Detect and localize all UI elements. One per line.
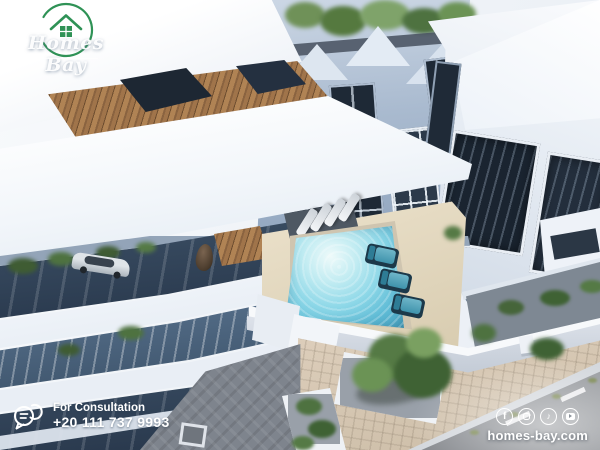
website-overlay: f ♪ homes-bay.com: [487, 408, 588, 443]
social-icons: f ♪: [487, 408, 588, 425]
facebook-glyph: f: [503, 412, 506, 422]
terrace-plant: [8, 258, 38, 274]
instagram-ring: [523, 413, 530, 420]
website-url: homes-bay.com: [487, 428, 588, 443]
terrace-plant: [136, 242, 156, 253]
tree-canopy: [406, 328, 442, 358]
consultation-text: For Consultation +20 111 737 9993: [53, 402, 170, 430]
brand-name: Homes Bay: [6, 32, 126, 76]
utility-box: [179, 422, 208, 447]
shrub: [308, 420, 336, 438]
consultation-phone: +20 111 737 9993: [53, 414, 170, 430]
chair-cushion: [387, 272, 409, 290]
tiktok-glyph: ♪: [546, 412, 551, 421]
balcony-plant: [58, 344, 80, 356]
deck-plant: [444, 226, 462, 240]
logo-underline: [34, 58, 98, 59]
youtube-play: [566, 413, 575, 420]
shrub: [540, 290, 570, 306]
consultation-overlay: For Consultation +20 111 737 9993: [12, 401, 170, 431]
chair-cushion: [400, 297, 422, 315]
tiktok-icon: ♪: [540, 408, 557, 425]
shrub: [530, 338, 564, 360]
tree-canopy: [352, 358, 392, 392]
shrub: [472, 324, 496, 342]
youtube-icon: [562, 408, 579, 425]
rooftop-plant: [285, 2, 325, 28]
chair-cushion: [374, 247, 396, 265]
shrub: [580, 280, 600, 293]
consultation-label: For Consultation: [53, 402, 170, 414]
chat-bubbles-icon: [12, 401, 44, 431]
balcony-plant: [118, 326, 144, 340]
facebook-icon: f: [496, 408, 513, 425]
shrub: [296, 398, 322, 415]
brand-logo: Homes Bay: [6, 2, 130, 68]
terrace-plant: [48, 252, 74, 266]
shrub: [498, 300, 524, 315]
shrub: [292, 436, 314, 450]
promo-poster: Homes Bay For Consultation +20 111 737 9…: [0, 0, 600, 450]
rooftop-plant: [320, 6, 366, 36]
instagram-icon: [518, 408, 535, 425]
